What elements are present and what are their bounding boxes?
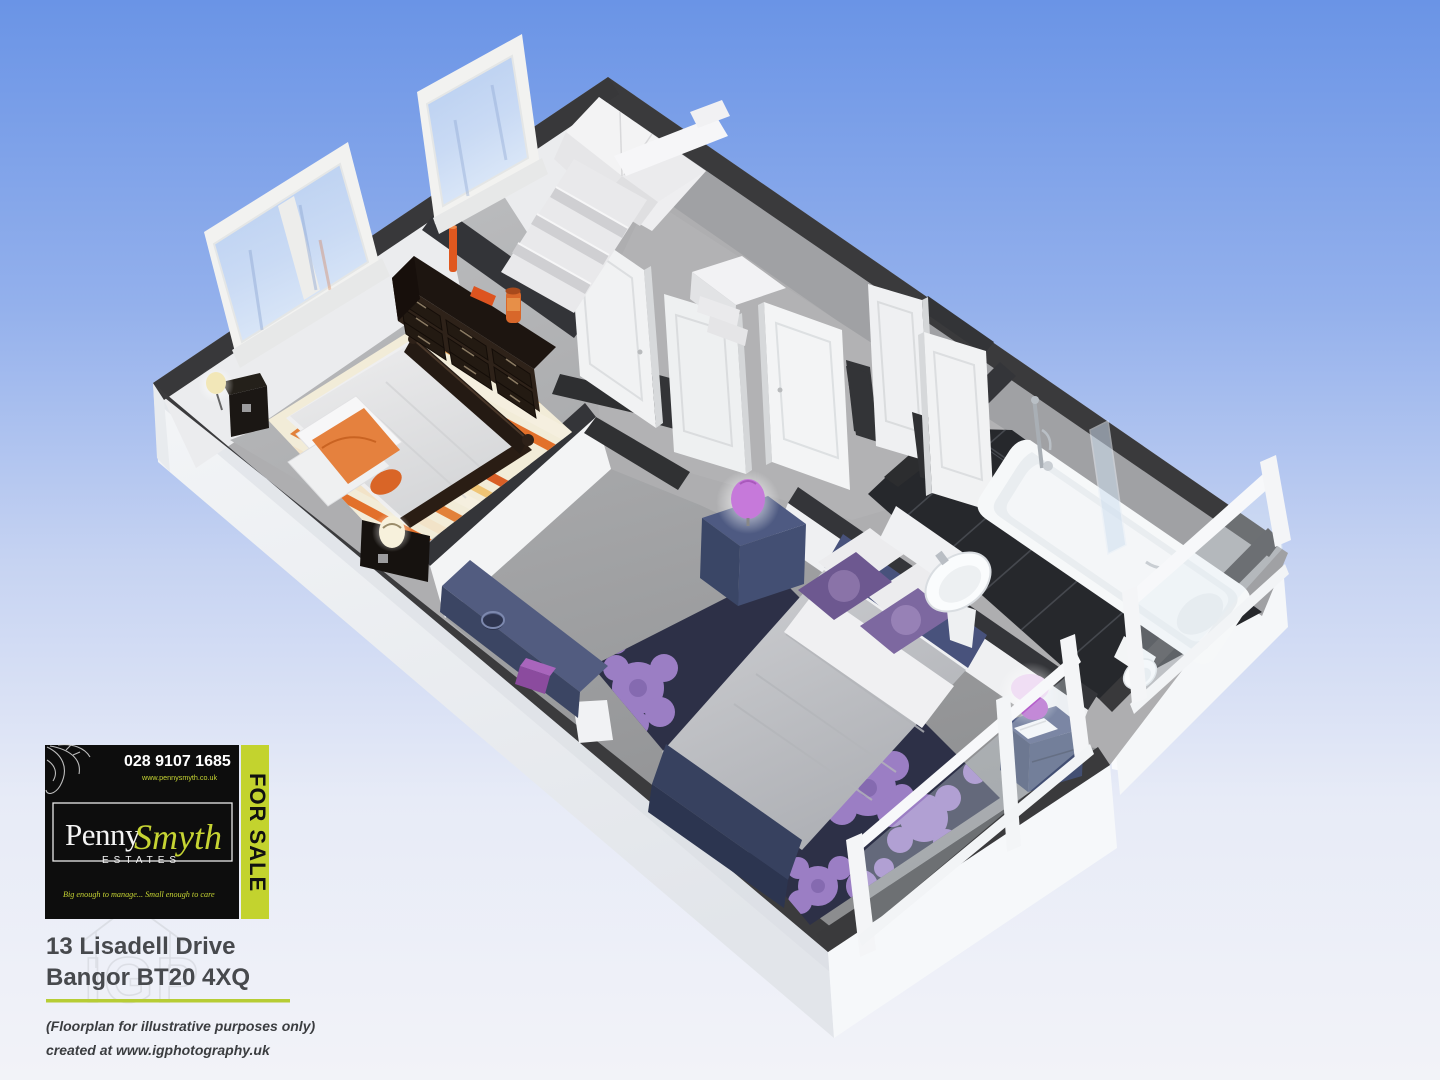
svg-text:Big enough to manage... Small: Big enough to manage... Small enough to … (63, 890, 215, 899)
svg-text:Penny: Penny (65, 817, 141, 852)
svg-text:028 9107 1685: 028 9107 1685 (124, 753, 231, 770)
svg-text:FOR SALE: FOR SALE (245, 773, 270, 892)
svg-text:ESTATES: ESTATES (102, 855, 181, 866)
svg-text:created at www.igphotography.u: created at www.igphotography.uk (46, 1042, 271, 1058)
svg-text:www.pennysmyth.co.uk: www.pennysmyth.co.uk (141, 773, 218, 782)
svg-text:Smyth: Smyth (134, 817, 222, 857)
svg-text:Bangor BT20 4XQ: Bangor BT20 4XQ (46, 964, 250, 991)
svg-text:13 Lisadell Drive: 13 Lisadell Drive (46, 933, 235, 960)
svg-text:(Floorplan for illustrative pu: (Floorplan for illustrative purposes onl… (46, 1018, 315, 1034)
